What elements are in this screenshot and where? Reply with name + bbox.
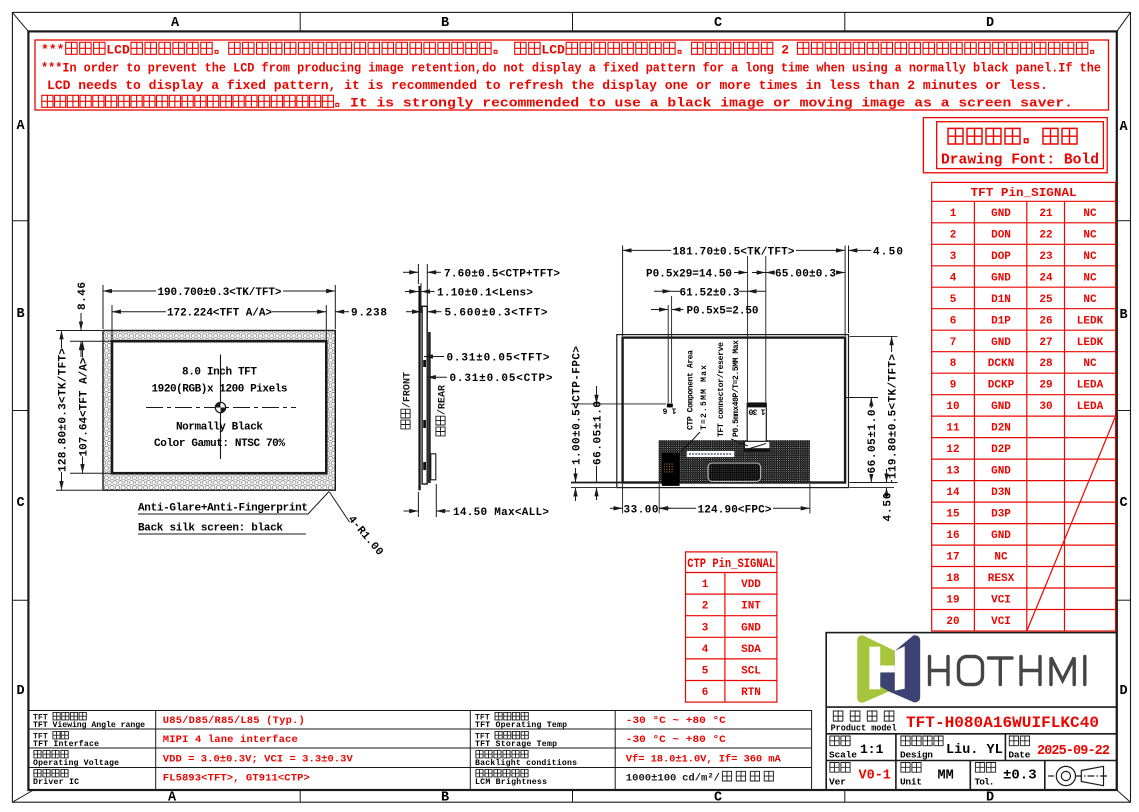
svg-text:4: 4 <box>950 272 957 284</box>
svg-text:10: 10 <box>946 401 959 413</box>
svg-text:LCD needs to display a fixed p: LCD needs to display a fixed pattern, it… <box>47 79 1048 93</box>
svg-text:5: 5 <box>950 294 957 306</box>
svg-text:D1P: D1P <box>991 315 1011 327</box>
svg-text:1.00±0.5<CTP-FPC>: 1.00±0.5<CTP-FPC> <box>571 346 583 465</box>
svg-text:INT: INT <box>741 601 761 613</box>
svg-text:C: C <box>16 496 24 511</box>
svg-text:NC: NC <box>1083 358 1097 370</box>
svg-text:TFT Pin_SIGNAL: TFT Pin_SIGNAL <box>971 187 1077 200</box>
svg-text:NC: NC <box>1083 251 1097 263</box>
svg-text:Operating Voltage: Operating Voltage <box>33 758 119 768</box>
svg-text:P0.5x29=14.50: P0.5x29=14.50 <box>646 269 732 281</box>
svg-text:2: 2 <box>950 229 957 241</box>
svg-text:D: D <box>16 684 24 699</box>
svg-text:D2N: D2N <box>991 423 1011 435</box>
svg-text:Backlight conditions: Backlight conditions <box>475 758 577 768</box>
svg-text:FL5893<TFT>, GT911<CTP>: FL5893<TFT>, GT911<CTP> <box>163 772 310 784</box>
svg-text:181.70±0.5<TK/TFT>: 181.70±0.5<TK/TFT> <box>673 246 795 258</box>
svg-text:GND: GND <box>741 622 761 634</box>
svg-text:A: A <box>168 791 177 806</box>
svg-text:33.00: 33.00 <box>624 504 659 516</box>
svg-text:19: 19 <box>946 595 959 607</box>
svg-text:24: 24 <box>1039 272 1053 284</box>
svg-text:128.80±0.3<TK/TFT>: 128.80±0.3<TK/TFT> <box>57 348 69 472</box>
svg-text:TFT Operating Temp: TFT Operating Temp <box>475 720 567 730</box>
svg-text:9: 9 <box>950 380 957 392</box>
svg-text:1 30: 1 30 <box>748 407 765 416</box>
svg-text:2025-09-22: 2025-09-22 <box>1037 744 1110 759</box>
svg-text:Drawing Font: Bold: Drawing Font: Bold <box>941 153 1099 169</box>
svg-text:T=2.5MM Max: T=2.5MM Max <box>700 365 709 430</box>
svg-text:3: 3 <box>702 622 709 634</box>
svg-text:SCL: SCL <box>741 666 761 678</box>
svg-text:11: 11 <box>946 423 960 435</box>
svg-text:1: 1 <box>950 208 957 220</box>
svg-text:LEDA: LEDA <box>1077 401 1104 413</box>
svg-text:8: 8 <box>950 358 957 370</box>
svg-text:61.52±0.3: 61.52±0.3 <box>680 287 740 299</box>
svg-text:B: B <box>441 791 449 806</box>
svg-text:D3N: D3N <box>991 487 1011 499</box>
svg-text:D3P: D3P <box>991 509 1011 521</box>
svg-text:CTP Pin_SIGNAL: CTP Pin_SIGNAL <box>687 557 775 571</box>
svg-text:LCM Brightness: LCM Brightness <box>475 777 547 787</box>
svg-text:4: 4 <box>702 644 709 656</box>
svg-text:GND: GND <box>991 466 1011 478</box>
svg-text:C: C <box>714 791 722 806</box>
svg-text:1:1: 1:1 <box>860 742 884 757</box>
svg-text:P0.5mmx40P/T=2.5MM Max: P0.5mmx40P/T=2.5MM Max <box>732 340 741 437</box>
svg-text:GND: GND <box>991 272 1011 284</box>
svg-text:Back silk screen: black: Back silk screen: black <box>138 523 283 535</box>
svg-text:Anti-Glare+Anti-Fingerprint: Anti-Glare+Anti-Fingerprint <box>138 503 308 515</box>
svg-text:66.05±1.0: 66.05±1.0 <box>867 410 879 474</box>
svg-text:TFT Interface: TFT Interface <box>33 739 99 749</box>
svg-text:P0.5x5=2.50: P0.5x5=2.50 <box>687 306 759 318</box>
svg-text:VDD: VDD <box>741 579 761 591</box>
svg-text:4.50: 4.50 <box>873 246 903 258</box>
svg-text:C: C <box>714 16 722 31</box>
svg-text:U85/D85/R85/L85 (Typ.): U85/D85/R85/L85 (Typ.) <box>163 715 305 727</box>
svg-text:VCI: VCI <box>991 616 1011 628</box>
svg-text:Unit: Unit <box>900 777 922 788</box>
svg-text:1000±100: 1000±100 <box>626 772 677 784</box>
svg-text:Vf= 18.0±1.0V, If= 360 mA: Vf= 18.0±1.0V, If= 360 mA <box>626 753 782 765</box>
svg-text:1.10±0.1<Lens>: 1.10±0.1<Lens> <box>437 288 533 300</box>
svg-text:CTP Component Area: CTP Component Area <box>687 350 696 430</box>
svg-text:LCD: LCD <box>541 43 565 58</box>
svg-text:TFT-H080A16WUIFLKC40: TFT-H080A16WUIFLKC40 <box>906 714 1099 732</box>
svg-text:GND: GND <box>991 337 1011 349</box>
svg-text:0.31±0.05<TFT>: 0.31±0.05<TFT> <box>447 353 550 365</box>
svg-text:GND: GND <box>991 530 1011 542</box>
svg-text:Normally Black: Normally Black <box>176 421 263 433</box>
svg-text:3: 3 <box>950 251 957 263</box>
svg-text:TFT Storage Temp: TFT Storage Temp <box>475 740 557 749</box>
svg-text:2: 2 <box>781 43 789 58</box>
svg-text:9.238: 9.238 <box>351 308 387 320</box>
svg-text:D: D <box>986 16 994 31</box>
svg-text:D: D <box>1119 684 1127 699</box>
svg-text:SDA: SDA <box>741 644 761 656</box>
svg-text:MM: MM <box>938 769 954 784</box>
svg-text:LCD: LCD <box>106 43 130 58</box>
svg-text:DON: DON <box>991 229 1011 241</box>
svg-text:D: D <box>986 791 994 806</box>
svg-text:GND: GND <box>991 208 1011 220</box>
svg-text:18: 18 <box>946 573 960 585</box>
svg-text:119.80±0.5<TK/TFT>: 119.80±0.5<TK/TFT> <box>887 354 899 479</box>
svg-text:66.05±1.0: 66.05±1.0 <box>592 401 604 465</box>
svg-text:4-R1.00: 4-R1.00 <box>345 514 385 558</box>
svg-text:7.60±0.5<CTP+TFT>: 7.60±0.5<CTP+TFT> <box>444 268 560 280</box>
svg-text:8.46: 8.46 <box>77 282 89 310</box>
svg-text:1: 1 <box>702 579 709 591</box>
svg-text:8.0 Inch TFT: 8.0 Inch TFT <box>182 367 257 379</box>
svg-text:26: 26 <box>1039 315 1052 327</box>
svg-text:B: B <box>441 16 449 31</box>
svg-text:13: 13 <box>946 466 960 478</box>
svg-text:29: 29 <box>1039 380 1052 392</box>
svg-text:5.600±0.3<TFT>: 5.600±0.3<TFT> <box>445 308 548 320</box>
svg-text:Design: Design <box>900 750 933 761</box>
svg-text:6: 6 <box>702 687 709 699</box>
svg-text:25: 25 <box>1039 294 1053 306</box>
svg-text:***In order to prevent the LCD: ***In order to prevent the LCD from prod… <box>41 62 1101 76</box>
svg-text:D2P: D2P <box>991 444 1011 456</box>
svg-text:0.31±0.05<CTP>: 0.31±0.05<CTP> <box>450 373 553 385</box>
svg-text:RTN: RTN <box>741 687 761 699</box>
svg-text:V0-1: V0-1 <box>859 769 891 784</box>
svg-text:It is strongly recommended to: It is strongly recommended to use a blac… <box>350 97 1073 111</box>
svg-text:LEDA: LEDA <box>1077 380 1104 392</box>
svg-text:NC: NC <box>1083 229 1097 241</box>
svg-text:22: 22 <box>1039 229 1052 241</box>
svg-text:LEDK: LEDK <box>1077 337 1104 349</box>
svg-text:16: 16 <box>946 530 959 542</box>
svg-text:107.64<TFT A/A>: 107.64<TFT A/A> <box>78 357 90 456</box>
svg-text:±0.3: ±0.3 <box>1003 768 1037 784</box>
svg-text:LEDK: LEDK <box>1077 315 1104 327</box>
svg-text:D1N: D1N <box>991 294 1011 306</box>
svg-text:Driver IC: Driver IC <box>33 777 79 787</box>
svg-text:A: A <box>171 16 180 31</box>
svg-text:A: A <box>16 119 25 134</box>
svg-text:B: B <box>1119 308 1127 323</box>
svg-text:MIPI 4 lane interface: MIPI 4 lane interface <box>163 734 298 746</box>
svg-text:TFT Viewing Angle range: TFT Viewing Angle range <box>33 720 145 730</box>
svg-text:Liu. YL: Liu. YL <box>946 743 1003 758</box>
svg-text:65.00±0.3: 65.00±0.3 <box>775 269 836 281</box>
svg-text:/REAR: /REAR <box>437 385 449 415</box>
svg-text:2: 2 <box>702 601 709 613</box>
svg-text:DCKN: DCKN <box>988 358 1014 370</box>
svg-text:12: 12 <box>946 444 959 456</box>
svg-text:***: *** <box>41 43 65 58</box>
svg-text:23: 23 <box>1039 251 1053 263</box>
svg-text:Ver: Ver <box>829 777 846 788</box>
svg-text:VCI: VCI <box>991 595 1011 607</box>
svg-text:Tol.: Tol. <box>975 777 995 788</box>
svg-text:5: 5 <box>702 666 709 678</box>
svg-text:1920(RGB)x 1200 Pixels: 1920(RGB)x 1200 Pixels <box>152 384 288 396</box>
svg-text:14.50 Max<ALL>: 14.50 Max<ALL> <box>453 507 549 519</box>
svg-text:NC: NC <box>1083 294 1097 306</box>
svg-text:27: 27 <box>1039 337 1052 349</box>
svg-text:Date: Date <box>1008 750 1030 761</box>
svg-text:B: B <box>16 307 24 322</box>
svg-text:DOP: DOP <box>991 251 1011 263</box>
svg-text:/FRONT: /FRONT <box>402 372 414 408</box>
svg-text:Scale: Scale <box>829 750 857 761</box>
svg-text:6: 6 <box>950 315 957 327</box>
svg-text:NC: NC <box>994 552 1008 564</box>
svg-text:-30 °C ~ +80 °C: -30 °C ~ +80 °C <box>626 734 727 746</box>
svg-text:28: 28 <box>1039 358 1053 370</box>
svg-text:GND: GND <box>991 401 1011 413</box>
svg-text:15: 15 <box>946 509 960 521</box>
svg-text:4.50: 4.50 <box>882 493 894 522</box>
svg-text:124.90<FPC>: 124.90<FPC> <box>698 504 772 516</box>
svg-text:17: 17 <box>946 552 959 564</box>
svg-text:Product model: Product model <box>831 723 897 734</box>
svg-text:NC: NC <box>1083 208 1097 220</box>
svg-text:C: C <box>1119 496 1127 511</box>
svg-text:VDD = 3.0±0.3V; VCI = 3.3±0.3V: VDD = 3.0±0.3V; VCI = 3.3±0.3V <box>163 753 354 765</box>
svg-text:21: 21 <box>1039 208 1053 220</box>
svg-text:-30 °C ~ +80 °C: -30 °C ~ +80 °C <box>626 715 727 727</box>
svg-text:TFT connector/reserve: TFT connector/reserve <box>717 342 726 437</box>
svg-text:172.224<TFT A/A>: 172.224<TFT A/A> <box>167 308 272 320</box>
svg-text:Color Gamut: NTSC 70%: Color Gamut: NTSC 70% <box>154 438 285 450</box>
svg-text:14: 14 <box>946 487 960 499</box>
svg-text:DCKP: DCKP <box>988 380 1015 392</box>
svg-text:30: 30 <box>1039 401 1052 413</box>
svg-text:20: 20 <box>946 616 959 628</box>
svg-text:7: 7 <box>950 337 957 349</box>
svg-text:A: A <box>1119 120 1128 135</box>
svg-text:RESX: RESX <box>988 573 1015 585</box>
svg-text:cd/m²/: cd/m²/ <box>682 772 720 784</box>
svg-text:1 6: 1 6 <box>662 406 676 415</box>
svg-text:190.700±0.3<TK/TFT>: 190.700±0.3<TK/TFT> <box>158 287 282 299</box>
svg-text:NC: NC <box>1083 272 1097 284</box>
